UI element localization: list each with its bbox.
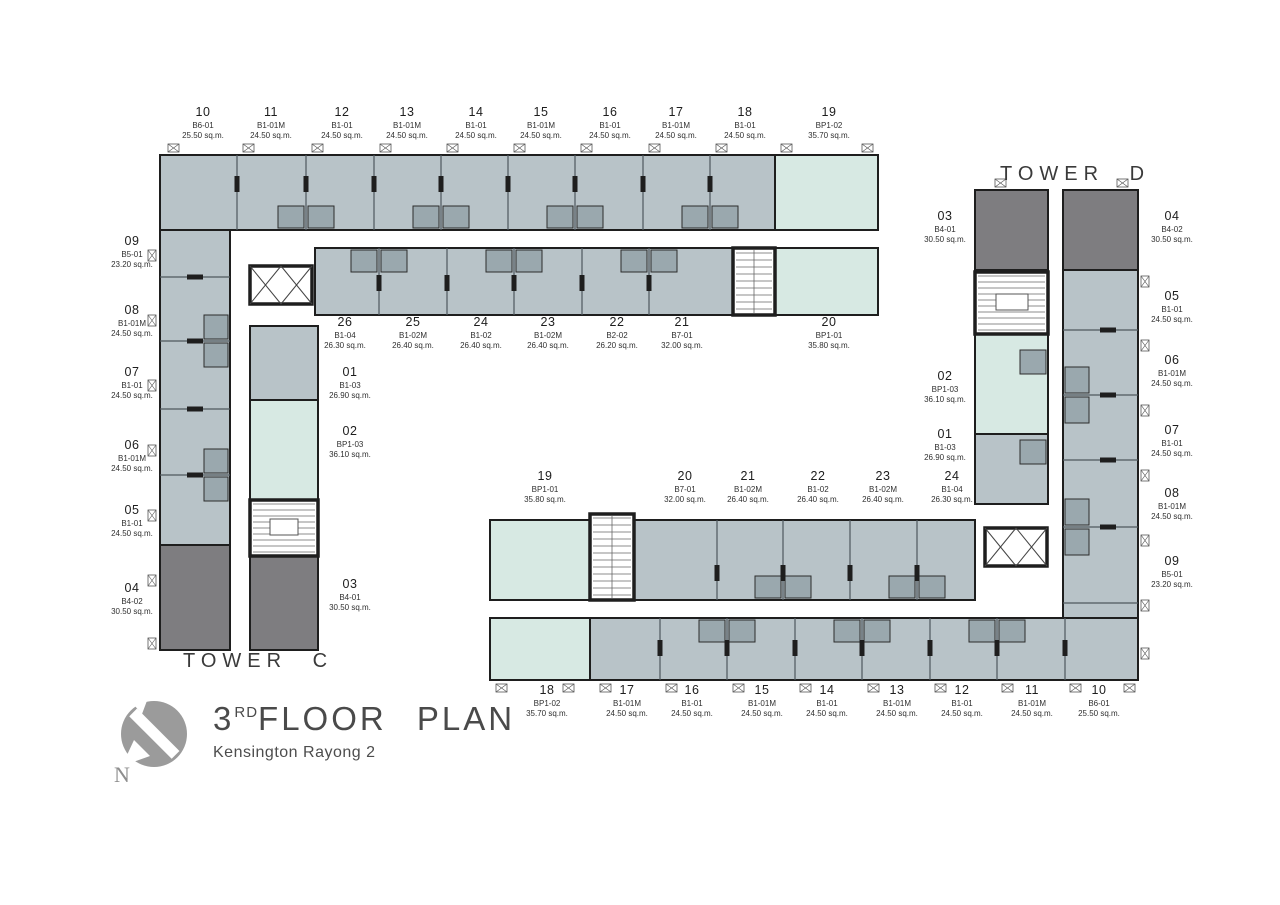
door-jamb (860, 640, 865, 656)
door-jamb (647, 275, 652, 291)
door-jamb (1100, 393, 1116, 398)
tower-c-label: TOWER C (183, 650, 333, 673)
bathroom-block (204, 343, 228, 367)
bathroom-block (1020, 440, 1046, 464)
floor-number: 3 (213, 700, 234, 737)
bathroom-block (621, 250, 647, 272)
door-jamb (187, 473, 203, 478)
bathroom-block (651, 250, 677, 272)
door-jamb (187, 407, 203, 412)
bathroom-block (699, 620, 725, 642)
unit-block-d03-dark (975, 190, 1048, 270)
door-jamb (641, 176, 646, 192)
bathroom-block (351, 250, 377, 272)
north-compass-icon: N (108, 692, 200, 788)
door-jamb (506, 176, 511, 192)
bathroom-block (1065, 367, 1089, 393)
bathroom-block (999, 620, 1025, 642)
stair-landing (270, 519, 298, 535)
bathroom-block (969, 620, 995, 642)
tower-d-label: TOWER D (1000, 163, 1150, 186)
door-jamb (445, 275, 450, 291)
door-jamb (715, 565, 720, 581)
unit-block-04-dark (160, 545, 230, 650)
door-jamb (573, 176, 578, 192)
title-block: 3RDFLOOR PLAN Kensington Rayong 2 (213, 700, 515, 762)
bathroom-block (1065, 529, 1089, 555)
compass-n-letter: N (114, 762, 130, 787)
unit-block-01 (250, 326, 318, 400)
bathroom-block (204, 477, 228, 501)
unit-block-d04-dark (1063, 190, 1138, 270)
door-jamb (235, 176, 240, 192)
bathroom-block (682, 206, 708, 228)
bathroom-block (547, 206, 573, 228)
page-title: 3RDFLOOR PLAN (213, 700, 515, 738)
bathroom-block (1065, 397, 1089, 423)
unit-block-20-mint (775, 248, 878, 315)
door-jamb (793, 640, 798, 656)
unit-block-02-mint (250, 400, 318, 500)
unit-block-18-mint (490, 618, 590, 680)
door-jamb (187, 339, 203, 344)
bathroom-block (413, 206, 439, 228)
elevator-core-tower-d (985, 528, 1047, 566)
door-jamb (781, 565, 786, 581)
door-jamb (1100, 525, 1116, 530)
door-jamb (377, 275, 382, 291)
bathroom-block (443, 206, 469, 228)
bathroom-block (785, 576, 811, 598)
floor-ordinal: RD (234, 704, 258, 721)
bathroom-block (308, 206, 334, 228)
bathroom-block (1065, 499, 1089, 525)
unit-block-col-05-09 (1063, 270, 1138, 618)
bathroom-block (834, 620, 860, 642)
bathroom-block (486, 250, 512, 272)
door-jamb (512, 275, 517, 291)
floor-plan-page: 10B6-0125.50 sq.m.11B1-01M24.50 sq.m.12B… (0, 0, 1280, 905)
door-jamb (725, 640, 730, 656)
bathroom-block (381, 250, 407, 272)
bathroom-block (889, 576, 915, 598)
bathroom-block (204, 315, 228, 339)
bathroom-block (204, 449, 228, 473)
bathroom-block (729, 620, 755, 642)
stair-landing (996, 294, 1028, 310)
door-jamb (187, 275, 203, 280)
door-jamb (304, 176, 309, 192)
bathroom-block (516, 250, 542, 272)
door-jamb (372, 176, 377, 192)
bathroom-block (755, 576, 781, 598)
unit-block-19-mint (775, 155, 878, 230)
bathroom-block (864, 620, 890, 642)
door-jamb (1063, 640, 1068, 656)
elevator-core-tower-c (250, 266, 312, 304)
door-jamb (1100, 328, 1116, 333)
unit-block-d02-mint (975, 334, 1048, 434)
project-name: Kensington Rayong 2 (213, 744, 515, 762)
door-jamb (708, 176, 713, 192)
bathroom-block (919, 576, 945, 598)
bathroom-block (278, 206, 304, 228)
door-jamb (928, 640, 933, 656)
bathroom-block (1020, 350, 1046, 374)
floor-plan-text: FLOOR PLAN (258, 700, 515, 737)
door-jamb (1100, 458, 1116, 463)
door-jamb (658, 640, 663, 656)
door-jamb (915, 565, 920, 581)
unit-block-19b-mint (490, 520, 590, 600)
bathroom-block (712, 206, 738, 228)
door-jamb (995, 640, 1000, 656)
door-jamb (439, 176, 444, 192)
bathroom-block (577, 206, 603, 228)
door-jamb (848, 565, 853, 581)
door-jamb (580, 275, 585, 291)
unit-block-03-dark (250, 556, 318, 650)
